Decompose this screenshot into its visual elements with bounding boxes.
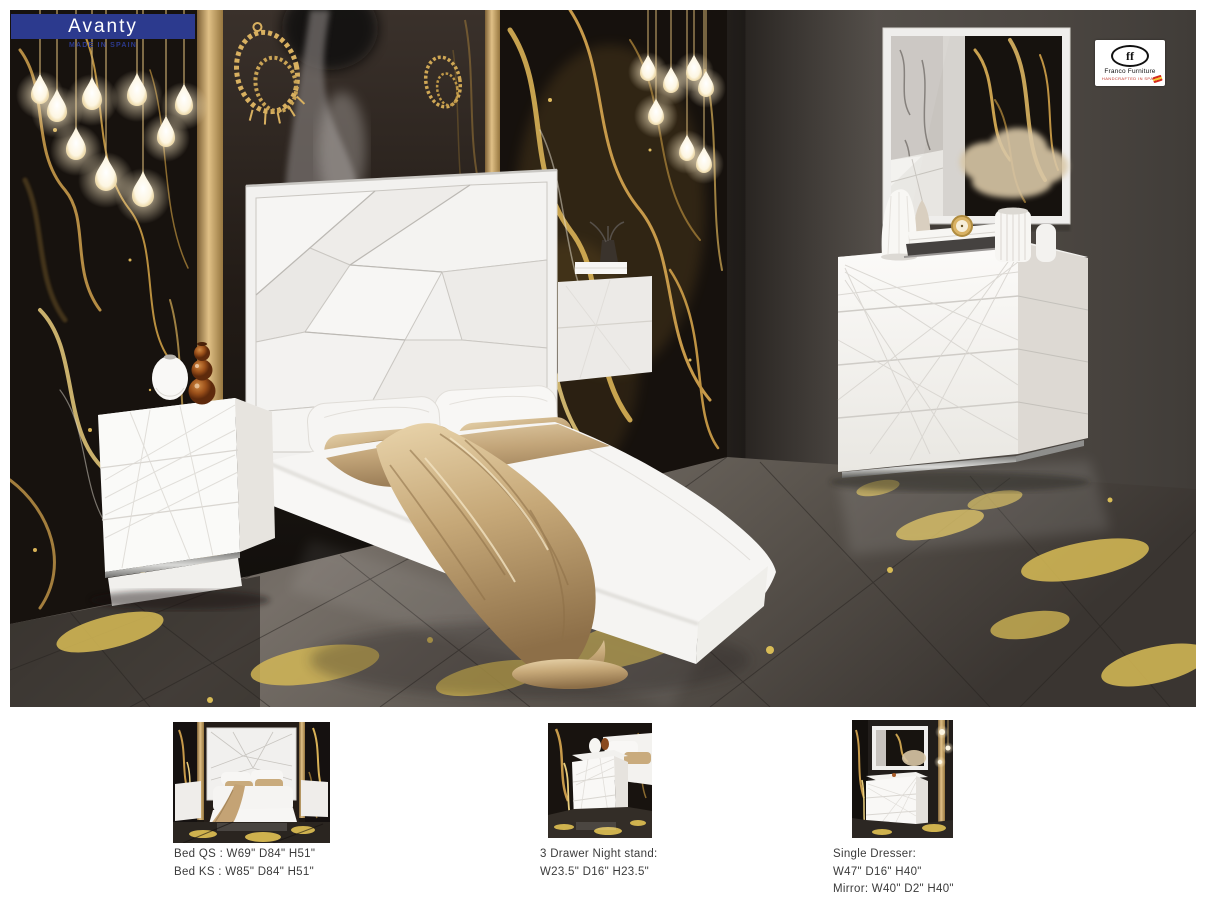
caption-nightstand: 3 Drawer Night stand: W23.5" D16" H23.5": [540, 846, 658, 881]
brand-tagline: HANDCRAFTED IN SPAIN: [1102, 76, 1158, 81]
small-white-jar: [1036, 224, 1056, 262]
brand-name: Franco Furniture: [1104, 68, 1155, 75]
brand-logo: ff Franco Furniture HANDCRAFTED IN SPAIN: [1095, 40, 1165, 86]
thumb-dresser-decor: [892, 773, 896, 777]
bedroom-scene: [10, 10, 1196, 707]
thumb-white-vase: [589, 738, 601, 754]
caption-dresser-line3: Mirror: W40" D2" H40": [833, 881, 954, 899]
caption-bed: Bed QS : W69" D84" H51" Bed KS : W85" D8…: [174, 846, 315, 881]
brand-monogram-text: ff: [1126, 50, 1134, 62]
brand-monogram-icon: ff: [1111, 45, 1149, 67]
caption-bed-line2: Bed KS : W85" D84" H51": [174, 864, 315, 882]
dresser-thumbnail: [852, 720, 953, 838]
product-thumb-dresser: [852, 720, 953, 838]
catalog-page: Avanty MADE IN SPAIN ff Franco Furniture…: [0, 0, 1206, 900]
caption-dresser: Single Dresser: W47" D16" H40" Mirror: W…: [833, 846, 954, 899]
caption-nightstand-line1: 3 Drawer Night stand:: [540, 846, 658, 864]
collection-title: Avanty: [68, 16, 138, 37]
nightstand-thumbnail: [548, 723, 652, 838]
bedroom-scene-photo: [10, 10, 1196, 707]
caption-nightstand-line2: W23.5" D16" H23.5": [540, 864, 658, 882]
made-in-label: MADE IN SPAIN: [11, 42, 195, 49]
caption-dresser-line1: Single Dresser:: [833, 846, 954, 864]
collection-banner: Avanty: [11, 14, 195, 39]
product-thumb-bed: [173, 722, 330, 843]
bed-thumbnail: [173, 722, 330, 843]
caption-bed-line1: Bed QS : W69" D84" H51": [174, 846, 315, 864]
spain-flag-icon: [1152, 75, 1162, 83]
product-thumb-nightstand: [548, 723, 652, 838]
caption-dresser-line2: W47" D16" H40": [833, 864, 954, 882]
thumb-amber-vase: [601, 738, 609, 750]
